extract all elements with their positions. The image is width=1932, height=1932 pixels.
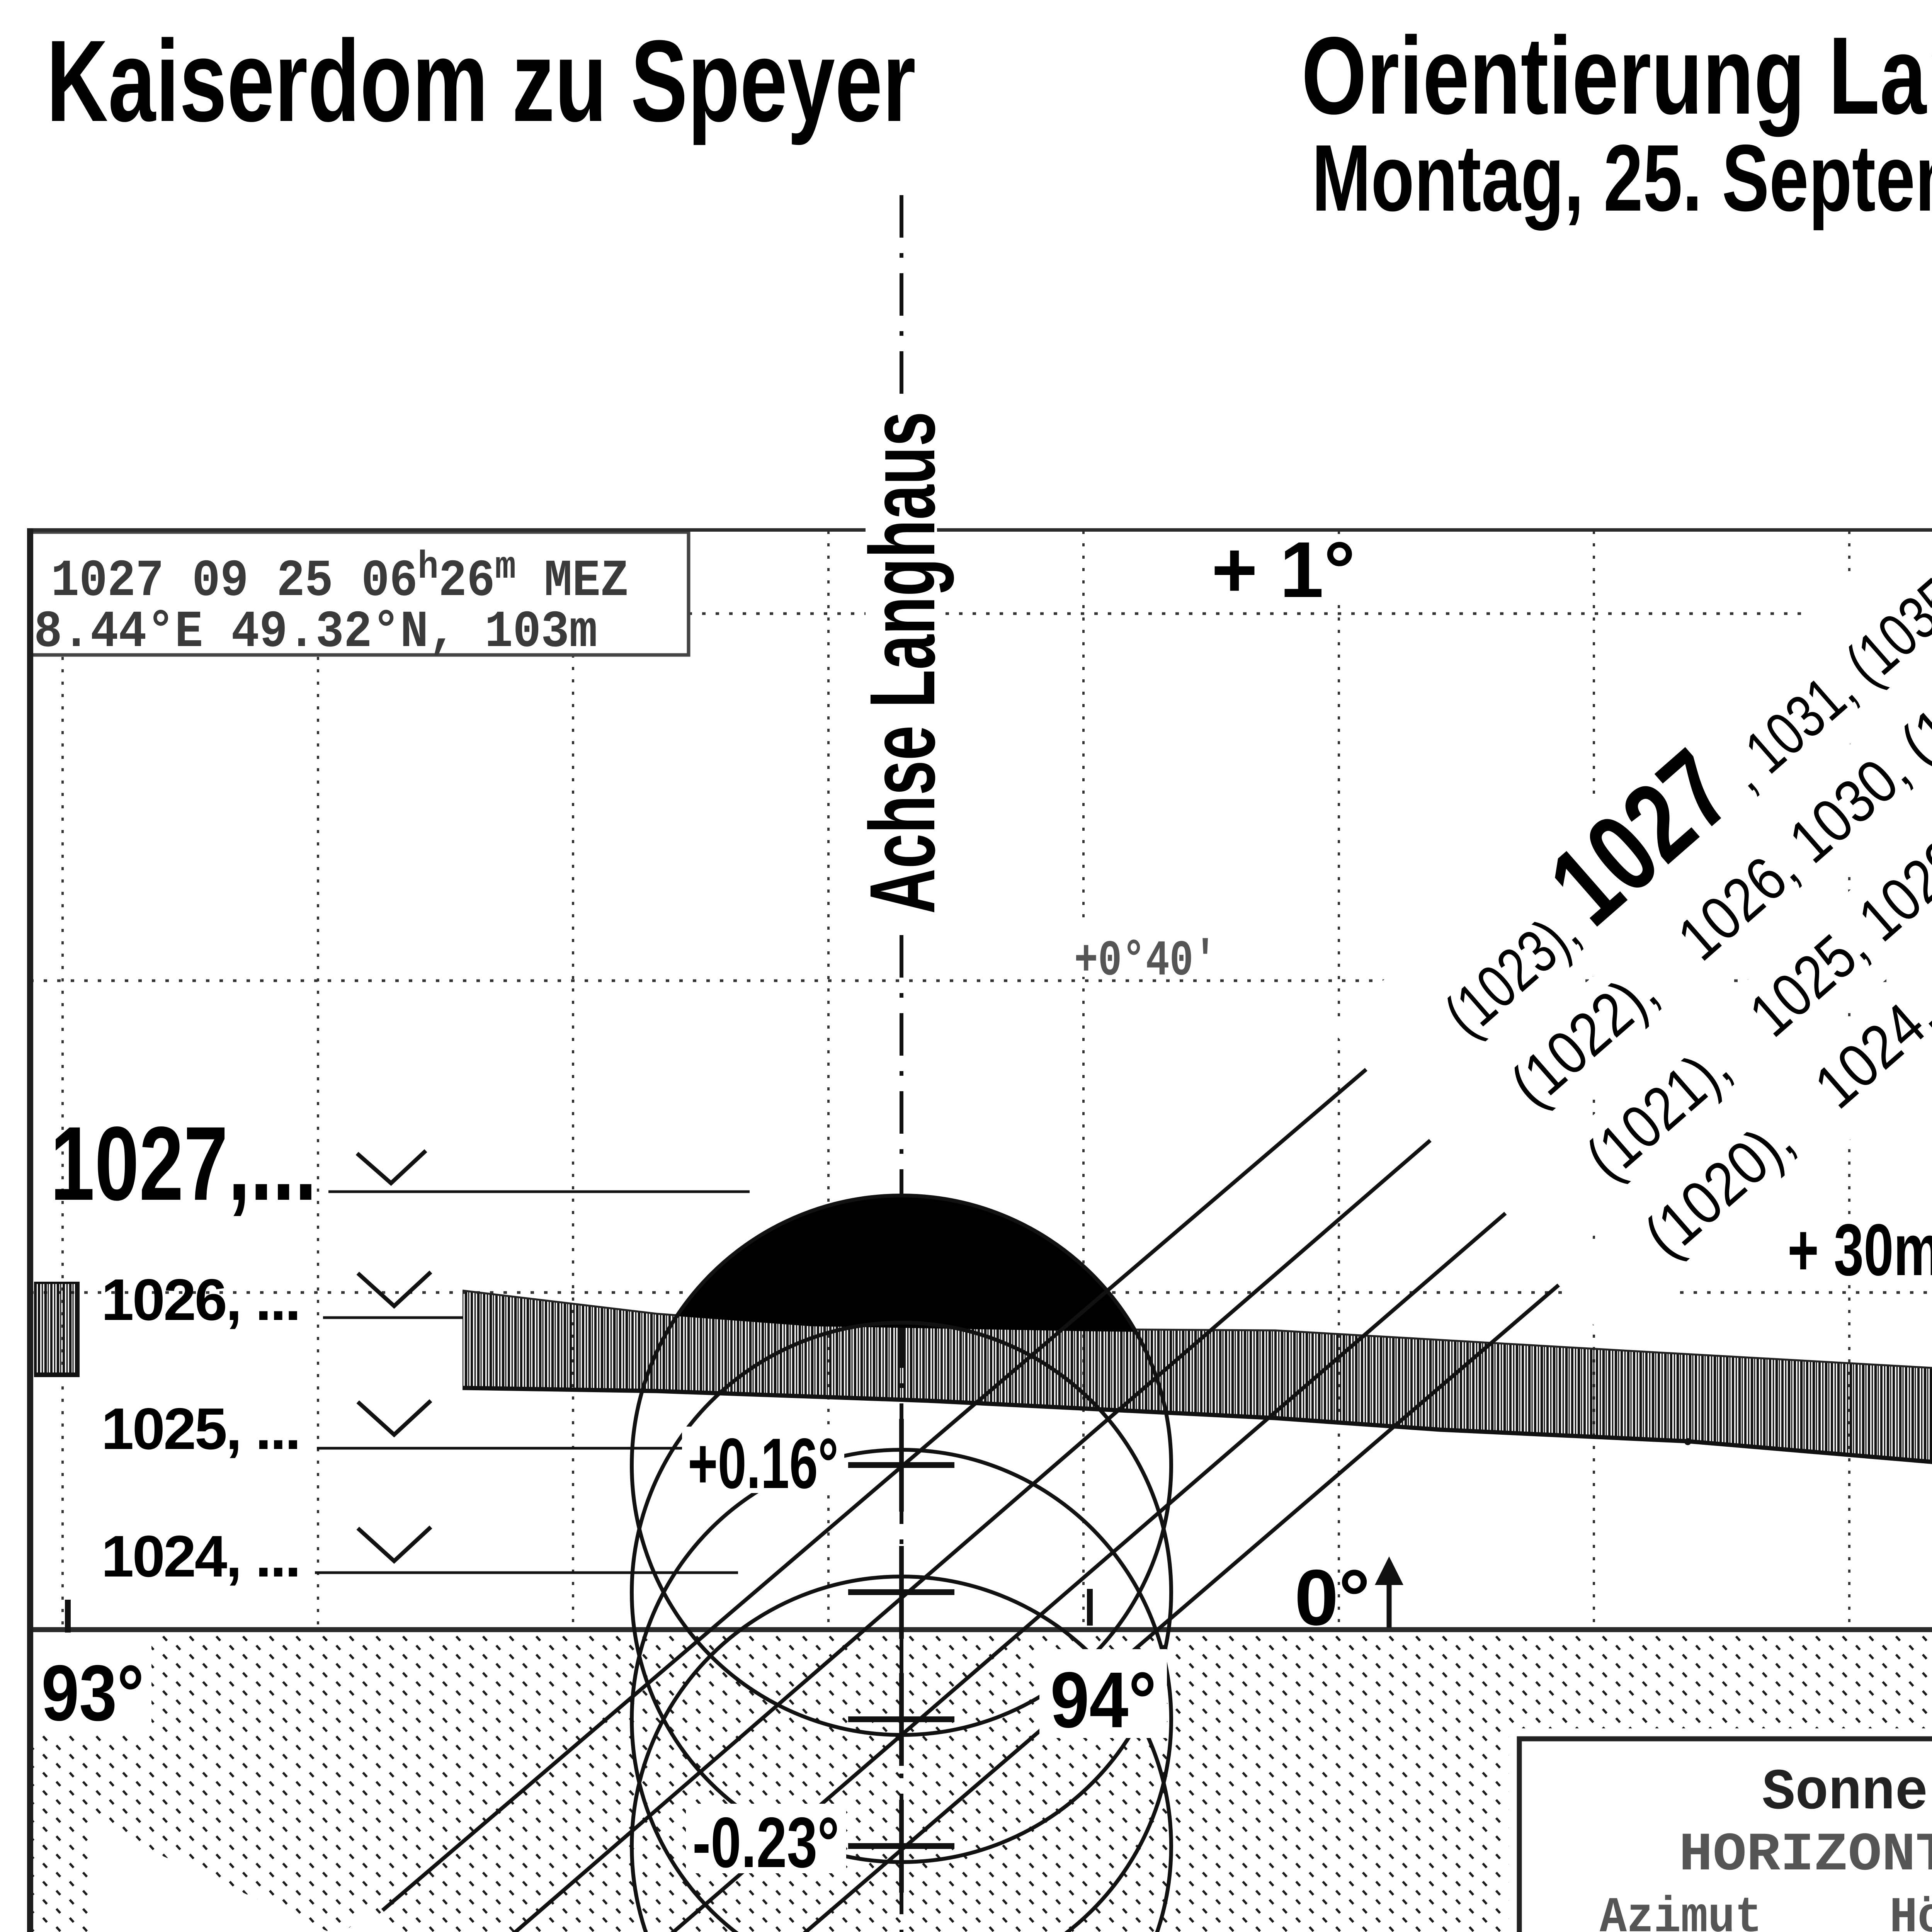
svg-text:1025, ...: 1025, ...	[101, 1396, 299, 1462]
svg-text:Orientierung Langhaus: Orientierung Langhaus	[1301, 14, 1932, 138]
svg-text:Azimut: Azimut	[1600, 1890, 1762, 1932]
svg-text:HORIZONTAL: HORIZONTAL	[1679, 1825, 1932, 1886]
svg-text:+ 1°: + 1°	[1211, 526, 1355, 614]
svg-text:Kaiserdom zu Speyer: Kaiserdom zu Speyer	[46, 16, 916, 146]
svg-text:93°: 93°	[41, 1649, 144, 1737]
svg-text:1026, ...: 1026, ...	[101, 1267, 299, 1333]
svg-text:Sonne: Sonne	[1762, 1760, 1928, 1826]
svg-text:0°: 0°	[1294, 1553, 1370, 1642]
svg-text:Achse Langhaus: Achse Langhaus	[850, 412, 954, 914]
svg-text:Höhe: Höhe	[1889, 1890, 1932, 1932]
svg-text:94°: 94°	[1050, 1656, 1156, 1744]
svg-text:+0°40': +0°40'	[1074, 933, 1217, 990]
svg-text:1027 09 25 06h26m MEZ: 1027 09 25 06h26m MEZ	[51, 546, 629, 611]
svg-text:1027,...: 1027,...	[50, 1105, 317, 1222]
svg-text:1024, ...: 1024, ...	[101, 1524, 299, 1589]
svg-text:-0.23°: -0.23°	[692, 1803, 839, 1883]
svg-text:8.44°E 49.32°N, 103m: 8.44°E 49.32°N, 103m	[34, 603, 597, 662]
svg-text:Montag, 25. September 1027: Montag, 25. September 1027	[1312, 125, 1932, 231]
svg-text:+0.16°: +0.16°	[688, 1424, 838, 1503]
svg-text:+ 30m Wald: + 30m Wald	[1787, 1209, 1932, 1291]
